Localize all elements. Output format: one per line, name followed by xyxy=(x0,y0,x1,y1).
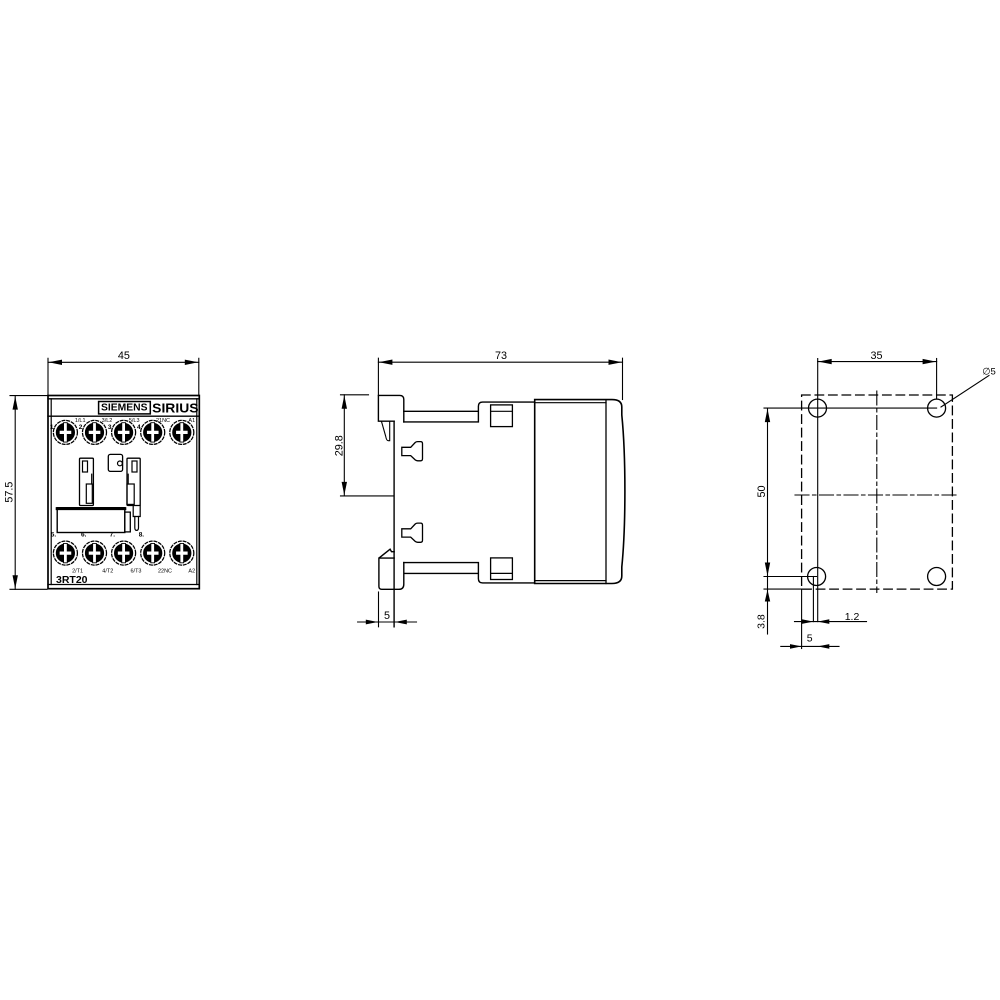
svg-text:5: 5 xyxy=(807,632,813,644)
svg-text:SIRIUS: SIRIUS xyxy=(152,401,198,416)
svg-text:5.: 5. xyxy=(51,532,57,539)
svg-text:4.: 4. xyxy=(137,424,143,431)
svg-text:7.: 7. xyxy=(110,532,116,539)
svg-text:57.5: 57.5 xyxy=(4,482,16,503)
svg-text:4/T2: 4/T2 xyxy=(102,569,113,575)
svg-text:8.: 8. xyxy=(139,532,145,539)
svg-text:3/L2: 3/L2 xyxy=(102,418,113,424)
svg-text:2.: 2. xyxy=(79,424,85,431)
svg-text:22NC: 22NC xyxy=(158,569,172,575)
svg-text:3.8: 3.8 xyxy=(756,614,768,629)
svg-text:∅5: ∅5 xyxy=(982,367,996,378)
svg-text:3RT20: 3RT20 xyxy=(56,574,88,586)
svg-text:1/L1: 1/L1 xyxy=(75,418,86,424)
svg-text:45: 45 xyxy=(118,350,130,362)
svg-text:A2: A2 xyxy=(188,569,195,575)
svg-text:21NC: 21NC xyxy=(156,418,170,424)
svg-text:SIEMENS: SIEMENS xyxy=(101,403,148,414)
svg-text:29.8: 29.8 xyxy=(333,435,345,456)
svg-text:6.: 6. xyxy=(81,532,87,539)
svg-text:6/T3: 6/T3 xyxy=(130,569,141,575)
svg-text:3.: 3. xyxy=(108,424,114,431)
svg-text:73: 73 xyxy=(495,350,507,362)
svg-text:5: 5 xyxy=(384,610,390,622)
svg-text:50: 50 xyxy=(756,485,768,497)
svg-text:1.2: 1.2 xyxy=(845,611,860,623)
svg-text:35: 35 xyxy=(870,350,882,362)
